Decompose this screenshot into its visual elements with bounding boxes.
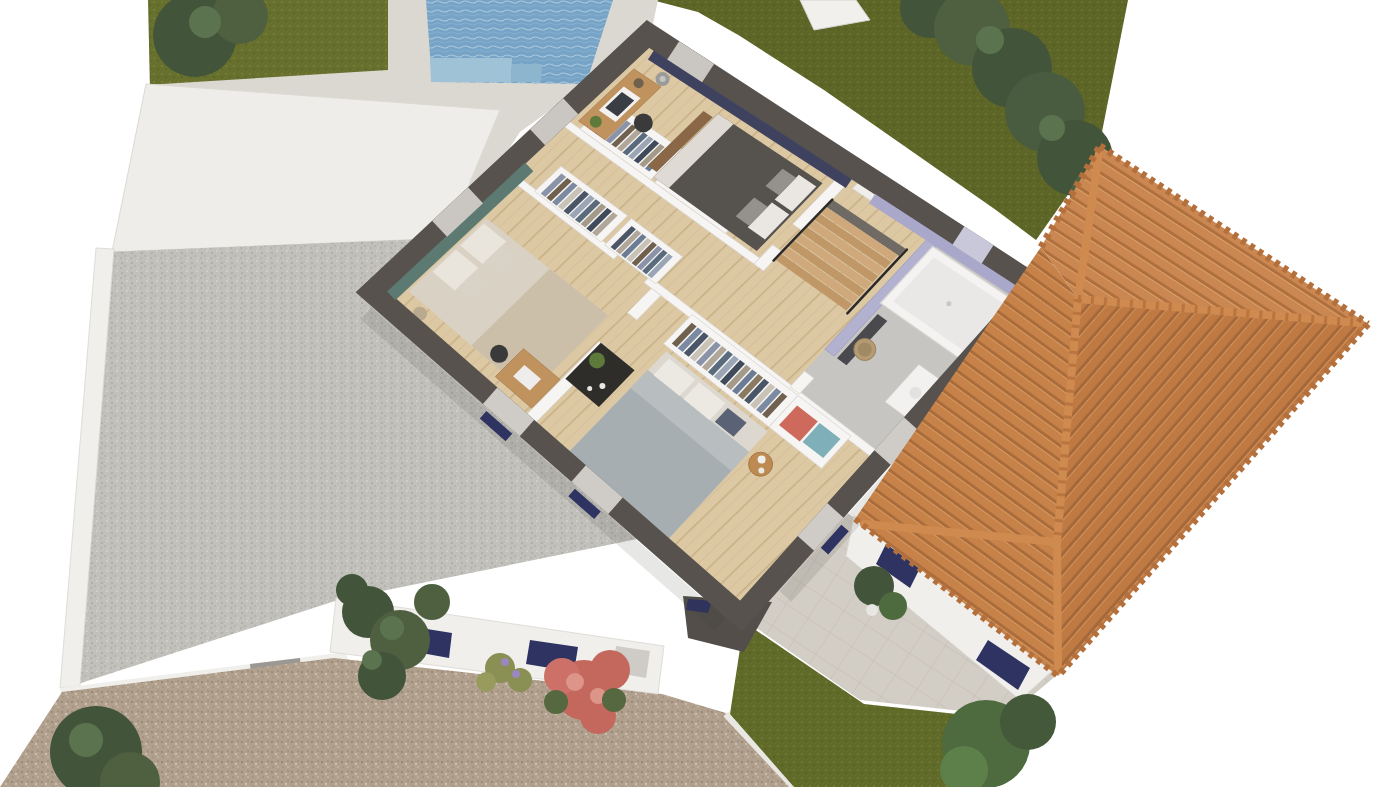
- rose-leaves-1: [544, 690, 568, 714]
- scene-layers: [0, 0, 1400, 787]
- pool-step-small: [511, 64, 542, 82]
- climbing-plant-hl-1: [380, 616, 404, 640]
- climbing-plant-5: [336, 574, 368, 606]
- hedge-bush-hl-1: [976, 26, 1004, 54]
- roof-ridge-south: [1057, 542, 1058, 670]
- bedroom3-shelf-candle-1: [599, 383, 605, 389]
- master-desk-chair: [634, 113, 653, 132]
- rose-bush-hl-1: [566, 673, 584, 691]
- scene-svg: [0, 0, 1400, 787]
- bedroom3-table-vase: [758, 467, 764, 473]
- bathtub-drain: [946, 301, 951, 306]
- floorplan-3d-render: [0, 0, 1400, 787]
- bathroom-sink-bowl: [909, 387, 921, 399]
- wing-plant-pot: [866, 604, 878, 616]
- corner-tree-2: [1000, 694, 1056, 750]
- rose-leaves-2: [602, 688, 626, 712]
- climbing-plant-4: [414, 584, 450, 620]
- wing-plant-2: [879, 592, 907, 620]
- master-desk-plant: [590, 116, 602, 128]
- lavender-plant-2: [508, 668, 532, 692]
- lavender-bloom-1: [501, 658, 509, 666]
- bedroom3-table-lamp: [758, 456, 766, 464]
- lavender-bloom-2: [512, 670, 520, 678]
- rose-bush-2: [590, 650, 630, 690]
- bush-top-left-hl: [189, 6, 221, 38]
- lavender-plant-3: [476, 672, 496, 692]
- bedroom3-shelf-plant: [589, 352, 605, 368]
- pool-step-large: [430, 58, 512, 82]
- master-desk-books: [634, 78, 644, 88]
- hedge-bush-hl-2: [1039, 115, 1065, 141]
- bedroom2-chair: [490, 345, 508, 363]
- bedroom3-shelf-candle-2: [587, 386, 592, 391]
- climbing-plant-hl-2: [362, 650, 382, 670]
- laundry-basket-inner: [858, 343, 872, 357]
- master-pendant-light-inner: [660, 76, 666, 82]
- bush-driveway-hl: [69, 723, 103, 757]
